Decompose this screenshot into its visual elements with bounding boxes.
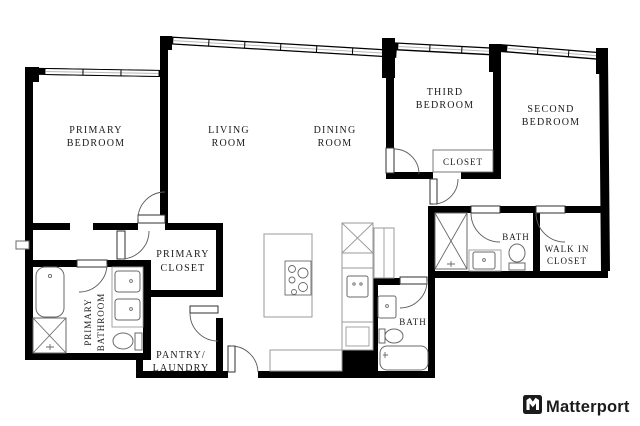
label-primary-closet-1: PRIMARY <box>156 249 209 260</box>
bath-second-fixtures <box>378 296 428 370</box>
door-primary-bathroom <box>77 260 107 292</box>
label-walk-in-closet-1: WALK IN <box>545 244 590 254</box>
label-dining-room-2: ROOM <box>318 138 353 149</box>
matterport-m-icon <box>523 395 542 414</box>
label-closet: CLOSET <box>443 157 483 167</box>
label-living-room-1: LIVING <box>208 125 250 136</box>
label-second-bedroom-1: SECOND <box>527 104 574 115</box>
label-second-bedroom-2: BEDROOM <box>522 117 580 128</box>
toilet <box>509 244 525 270</box>
label-primary-bedroom-1: PRIMARY <box>69 125 122 136</box>
window-band-living-dining <box>163 36 397 58</box>
kitchen-island <box>264 234 312 317</box>
wall-right <box>599 53 610 271</box>
wall-closet-right <box>216 223 223 297</box>
shower <box>435 213 467 269</box>
label-bath-upper: BATH <box>502 232 530 242</box>
bathtub <box>380 346 428 370</box>
matterport-logo: Matterport <box>523 395 630 416</box>
floorplan-page: PRIMARY BEDROOM LIVING ROOM DINING ROOM … <box>0 0 640 426</box>
door-primary-closet <box>117 231 149 259</box>
toilet <box>113 333 142 350</box>
door-bath-upper <box>471 206 500 242</box>
wall-bath-wic <box>533 213 540 271</box>
kitchen-tall-cabinet <box>374 228 394 278</box>
label-primary-bedroom-2: BEDROOM <box>67 138 125 149</box>
label-bath-second: BATH <box>399 317 427 327</box>
label-primary-closet-2: CLOSET <box>161 263 206 274</box>
toilet <box>379 329 403 343</box>
label-third-bedroom-2: BEDROOM <box>416 100 474 111</box>
window-band-third-bedroom <box>388 42 500 56</box>
door-walk-in-closet <box>536 206 565 242</box>
wall-left <box>25 68 33 360</box>
wall-bathroom-bottom <box>25 353 143 360</box>
label-pantry-laundry-1: PANTRY/ <box>156 350 206 361</box>
label-third-bedroom-1: THIRD <box>427 87 464 98</box>
wall-suite-bottom <box>428 271 608 278</box>
label-primary-bathroom-1: PRIMARY <box>83 298 93 346</box>
door-second-bedroom <box>430 179 458 204</box>
shower <box>33 318 66 353</box>
wall-fin <box>16 241 29 249</box>
wall-bathroom-right <box>143 267 151 360</box>
door-third-bedroom <box>386 148 419 174</box>
wall-pantry-right <box>216 318 223 373</box>
wall-third-bedroom-left <box>386 70 394 148</box>
label-dining-room-1: DINING <box>314 125 357 136</box>
matterport-wordmark: Matterport <box>546 398 630 416</box>
bath-upper-fixtures <box>435 213 525 271</box>
label-walk-in-closet-2: CLOSET <box>547 256 587 266</box>
door-bath-second <box>400 277 427 308</box>
wall-bath2-right <box>428 206 435 378</box>
label-primary-bathroom-2: BATHROOM <box>96 293 106 352</box>
window-band-primary-bedroom <box>33 68 163 77</box>
door-unit-entry <box>228 346 258 372</box>
kitchen-sink <box>347 276 368 297</box>
sink <box>473 252 495 269</box>
kitchen-counter-column <box>342 223 373 350</box>
label-living-room-2: ROOM <box>212 138 247 149</box>
window-band-second-bedroom <box>500 44 607 61</box>
wall-closet-pantry <box>143 290 223 297</box>
exterior-walls <box>25 53 610 378</box>
label-pantry-laundry-2: LAUNDRY <box>153 363 210 374</box>
wall-primary-living <box>160 36 168 223</box>
sink-1 <box>115 271 140 292</box>
kitchen-bottom-counter <box>270 350 342 371</box>
wall-third-second <box>493 70 501 179</box>
door-pantry-laundry <box>190 306 218 341</box>
floorplan-svg: PRIMARY BEDROOM LIVING ROOM DINING ROOM … <box>0 0 640 426</box>
sink-2 <box>115 299 140 320</box>
